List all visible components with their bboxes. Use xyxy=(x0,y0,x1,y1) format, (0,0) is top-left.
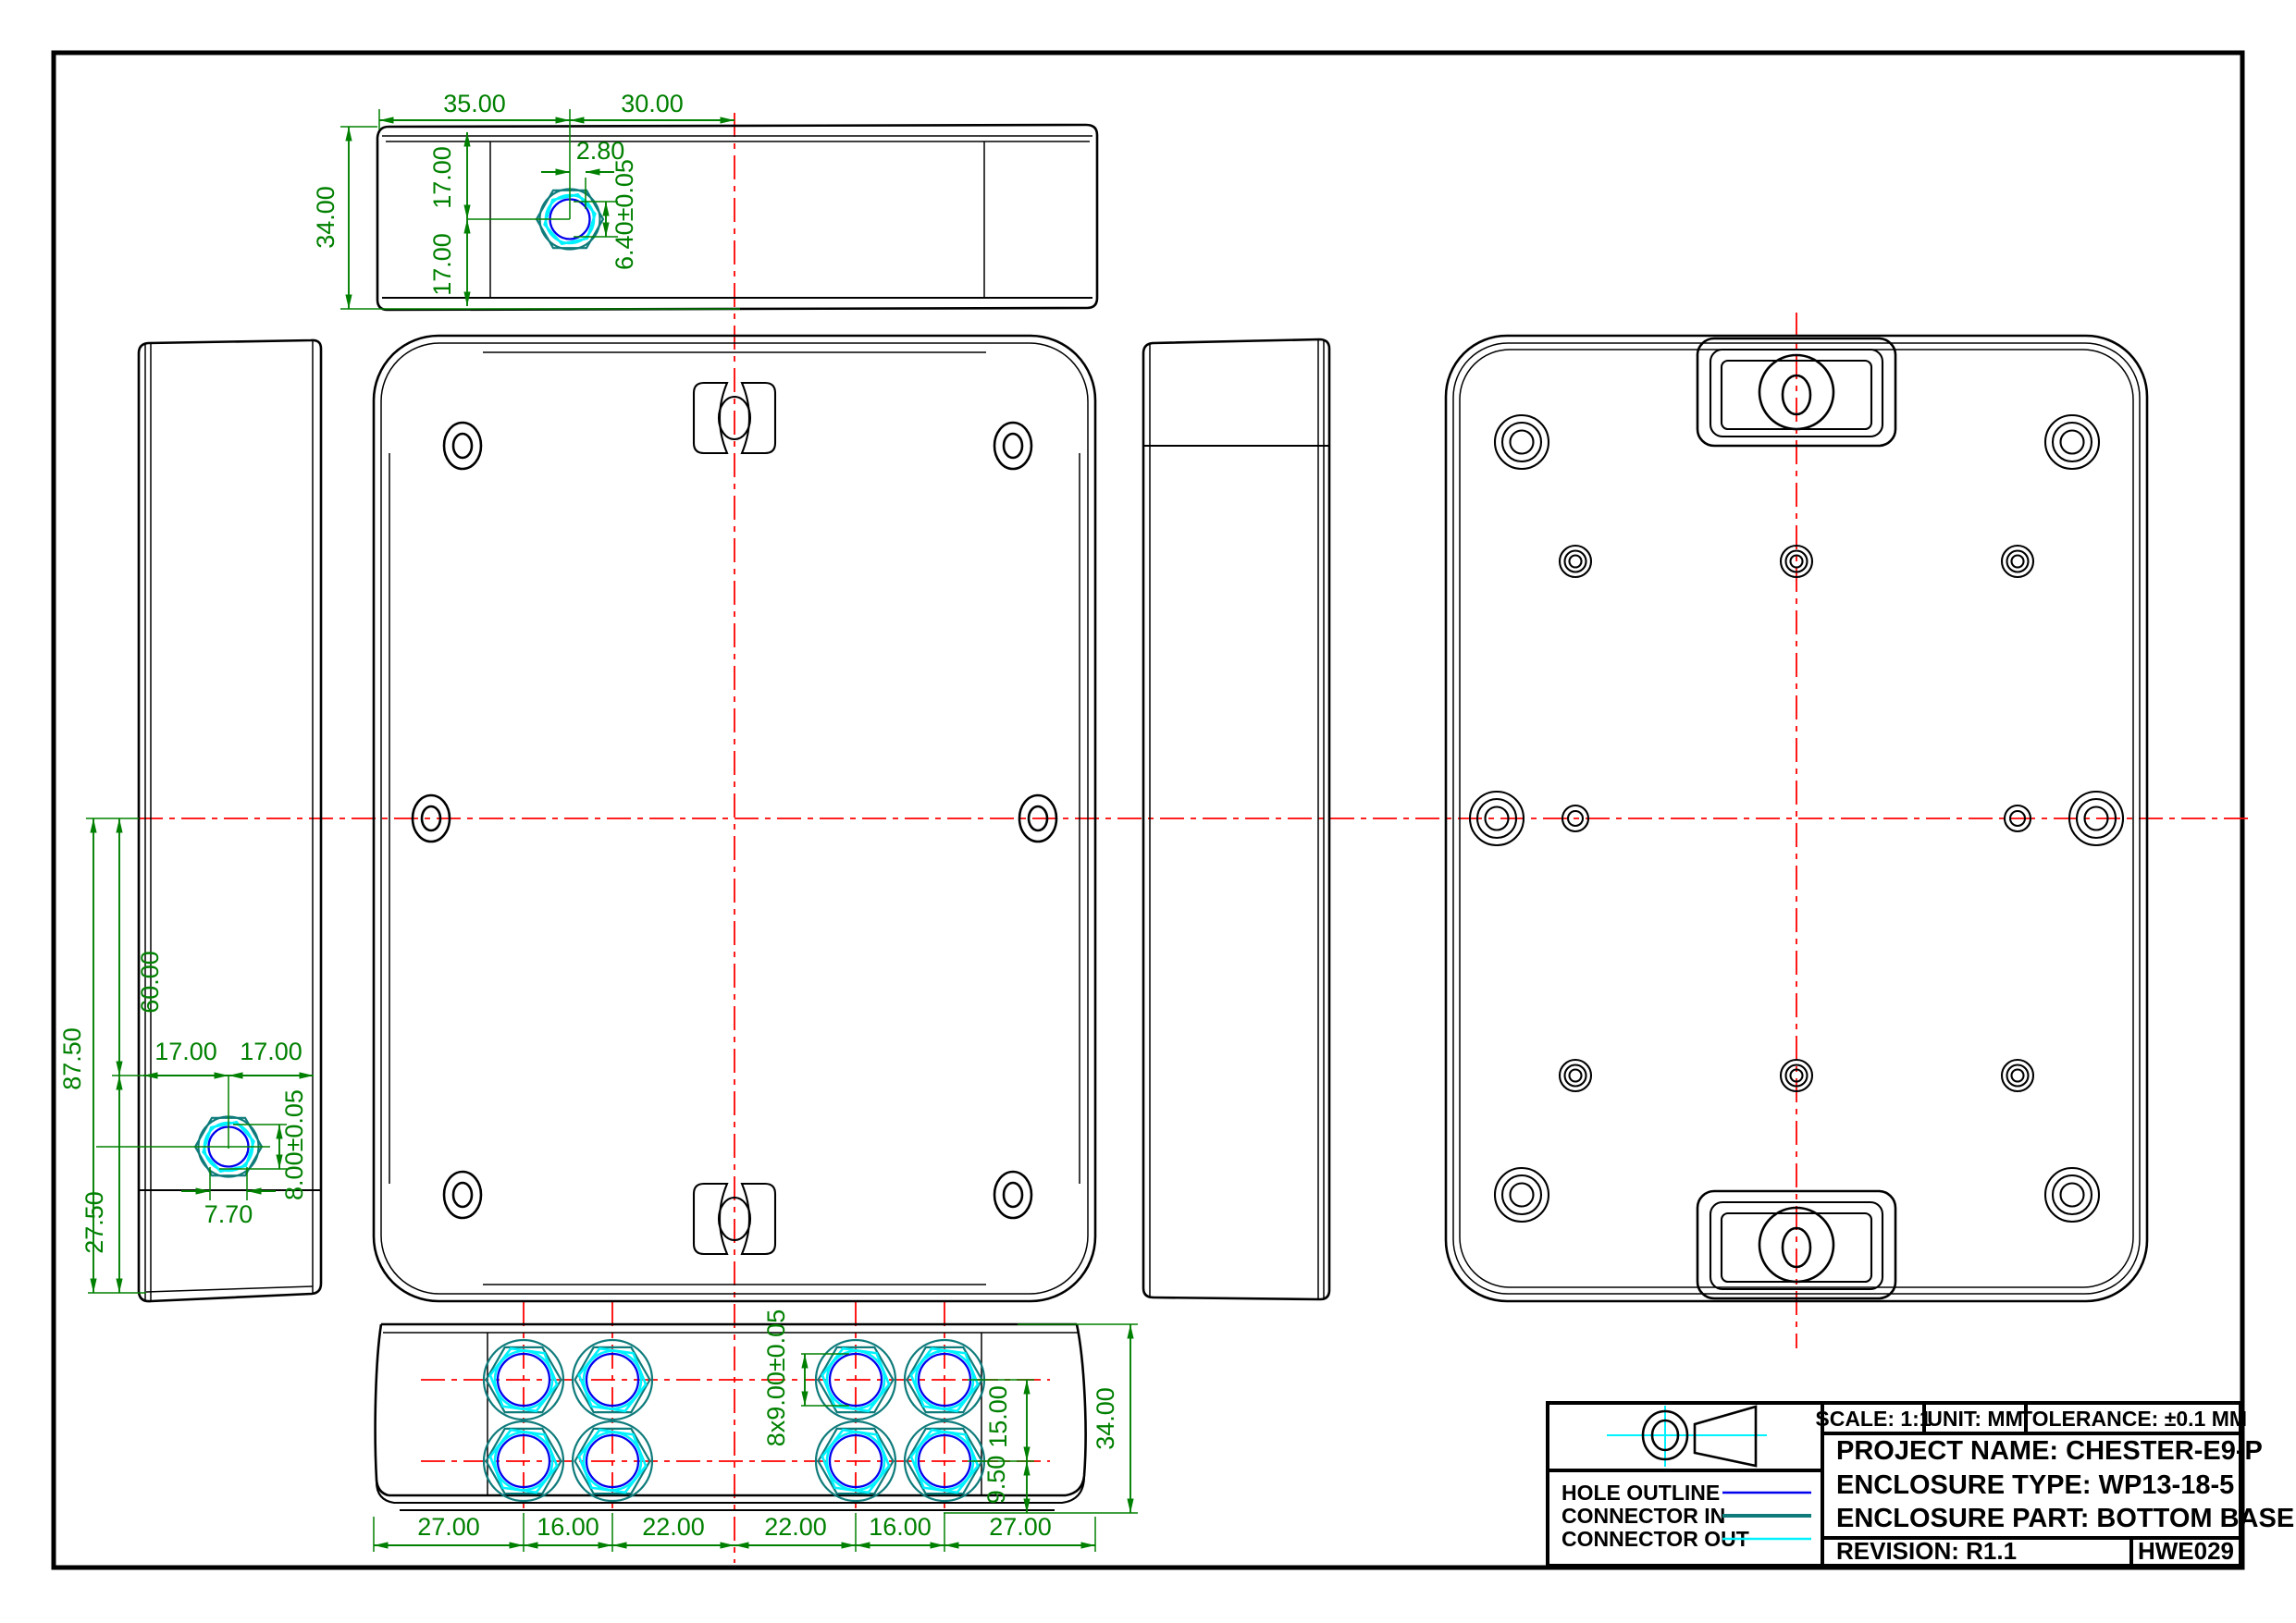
tb-scale: SCALE: 1:1 xyxy=(1815,1407,1931,1431)
screw-hole xyxy=(444,1172,481,1218)
title-block: HOLE OUTLINE CONNECTOR IN CONNECTOR OUT … xyxy=(1548,1403,2294,1566)
legend-label-connector-out: CONNECTOR OUT xyxy=(1562,1527,1749,1551)
dim-chain-1: 27.00 xyxy=(417,1513,480,1541)
dim-chain-2: 16.00 xyxy=(537,1513,599,1541)
corner-boss xyxy=(2045,415,2099,469)
pcb-hole xyxy=(2002,1060,2033,1091)
dims-top: 35.00 30.00 2.80 17.00 17.00 34.00 6.40±… xyxy=(312,90,740,309)
dim-bottom-34: 34.00 xyxy=(1092,1387,1119,1450)
pcb-hole xyxy=(1560,1060,1591,1091)
mount-tab-top xyxy=(1697,338,1895,446)
screw-hole xyxy=(994,1172,1031,1218)
connector-icon xyxy=(1607,1406,1767,1467)
dim-left-27-50: 27.50 xyxy=(80,1191,108,1254)
corner-boss xyxy=(1495,415,1549,469)
legend: HOLE OUTLINE CONNECTOR IN CONNECTOR OUT xyxy=(1562,1481,1811,1551)
dim-15-00: 15.00 xyxy=(984,1385,1012,1448)
dims-left: 17.00 17.00 8.00±0.05 7.70 87.50 60.00 2… xyxy=(58,818,314,1293)
dim-left-7-70: 7.70 xyxy=(204,1200,253,1228)
tb-project: PROJECT NAME: CHESTER-E9-P xyxy=(1836,1436,2263,1466)
corner-boss xyxy=(1495,1168,1549,1222)
pcb-hole xyxy=(1781,1060,1812,1091)
dim-top-35: 35.00 xyxy=(443,90,506,117)
mount-tab-bottom xyxy=(1697,1191,1895,1298)
dim-top-17-lower: 17.00 xyxy=(428,233,456,296)
dim-left-17a: 17.00 xyxy=(154,1038,217,1065)
dim-8x9: 8x9.00±0.05 xyxy=(762,1309,790,1446)
dim-chain-3: 22.00 xyxy=(642,1513,705,1541)
tb-enclosure-type: ENCLOSURE TYPE: WP13-18-5 xyxy=(1836,1470,2234,1500)
dim-top-6-40: 6.40±0.05 xyxy=(611,159,638,270)
legend-label-connector-in: CONNECTOR IN xyxy=(1562,1504,1725,1528)
dim-left-17b: 17.00 xyxy=(240,1038,302,1065)
mid-edge-boss xyxy=(1470,792,1524,845)
centerlines xyxy=(139,113,2250,1563)
dim-chain-5: 16.00 xyxy=(869,1513,932,1541)
dim-top-17-upper: 17.00 xyxy=(428,146,456,209)
view-right-side xyxy=(1143,339,1329,1299)
tb-enclosure-part: ENCLOSURE PART: BOTTOM BASE xyxy=(1836,1504,2294,1533)
view-bottom xyxy=(376,1324,1086,1510)
tb-doc-code: HWE029 xyxy=(2138,1537,2234,1565)
corner-boss xyxy=(2045,1168,2099,1222)
pcb-hole xyxy=(2002,546,2033,577)
screw-hole xyxy=(994,423,1031,469)
view-top xyxy=(377,125,1097,310)
dims-bottom: 27.00 16.00 22.00 22.00 16.00 27.00 8x9.… xyxy=(374,1309,1138,1552)
tb-unit: UNIT: MM xyxy=(1927,1407,2022,1431)
drawing-sheet: 35.00 30.00 2.80 17.00 17.00 34.00 6.40±… xyxy=(0,0,2296,1623)
engineering-drawing-canvas: 35.00 30.00 2.80 17.00 17.00 34.00 6.40±… xyxy=(0,0,2296,1623)
sheet-border xyxy=(54,53,2242,1568)
screw-hole xyxy=(444,423,481,469)
dim-left-87-50: 87.50 xyxy=(58,1027,86,1090)
dim-left-8-00: 8.00±0.05 xyxy=(280,1089,308,1200)
dim-chain-4: 22.00 xyxy=(764,1513,827,1541)
pcb-hole xyxy=(1560,546,1591,577)
dim-chain-6: 27.00 xyxy=(989,1513,1052,1541)
dim-9-50: 9.50 xyxy=(982,1456,1010,1505)
tb-tolerance: TOLERANCE: ±0.1 MM xyxy=(2019,1407,2247,1431)
dim-left-60-00: 60.00 xyxy=(136,951,164,1014)
dim-top-34: 34.00 xyxy=(312,186,339,249)
dim-top-30: 30.00 xyxy=(621,90,684,117)
legend-label-hole-outline: HOLE OUTLINE xyxy=(1562,1481,1720,1505)
tb-revision: REVISION: R1.1 xyxy=(1836,1537,2017,1565)
